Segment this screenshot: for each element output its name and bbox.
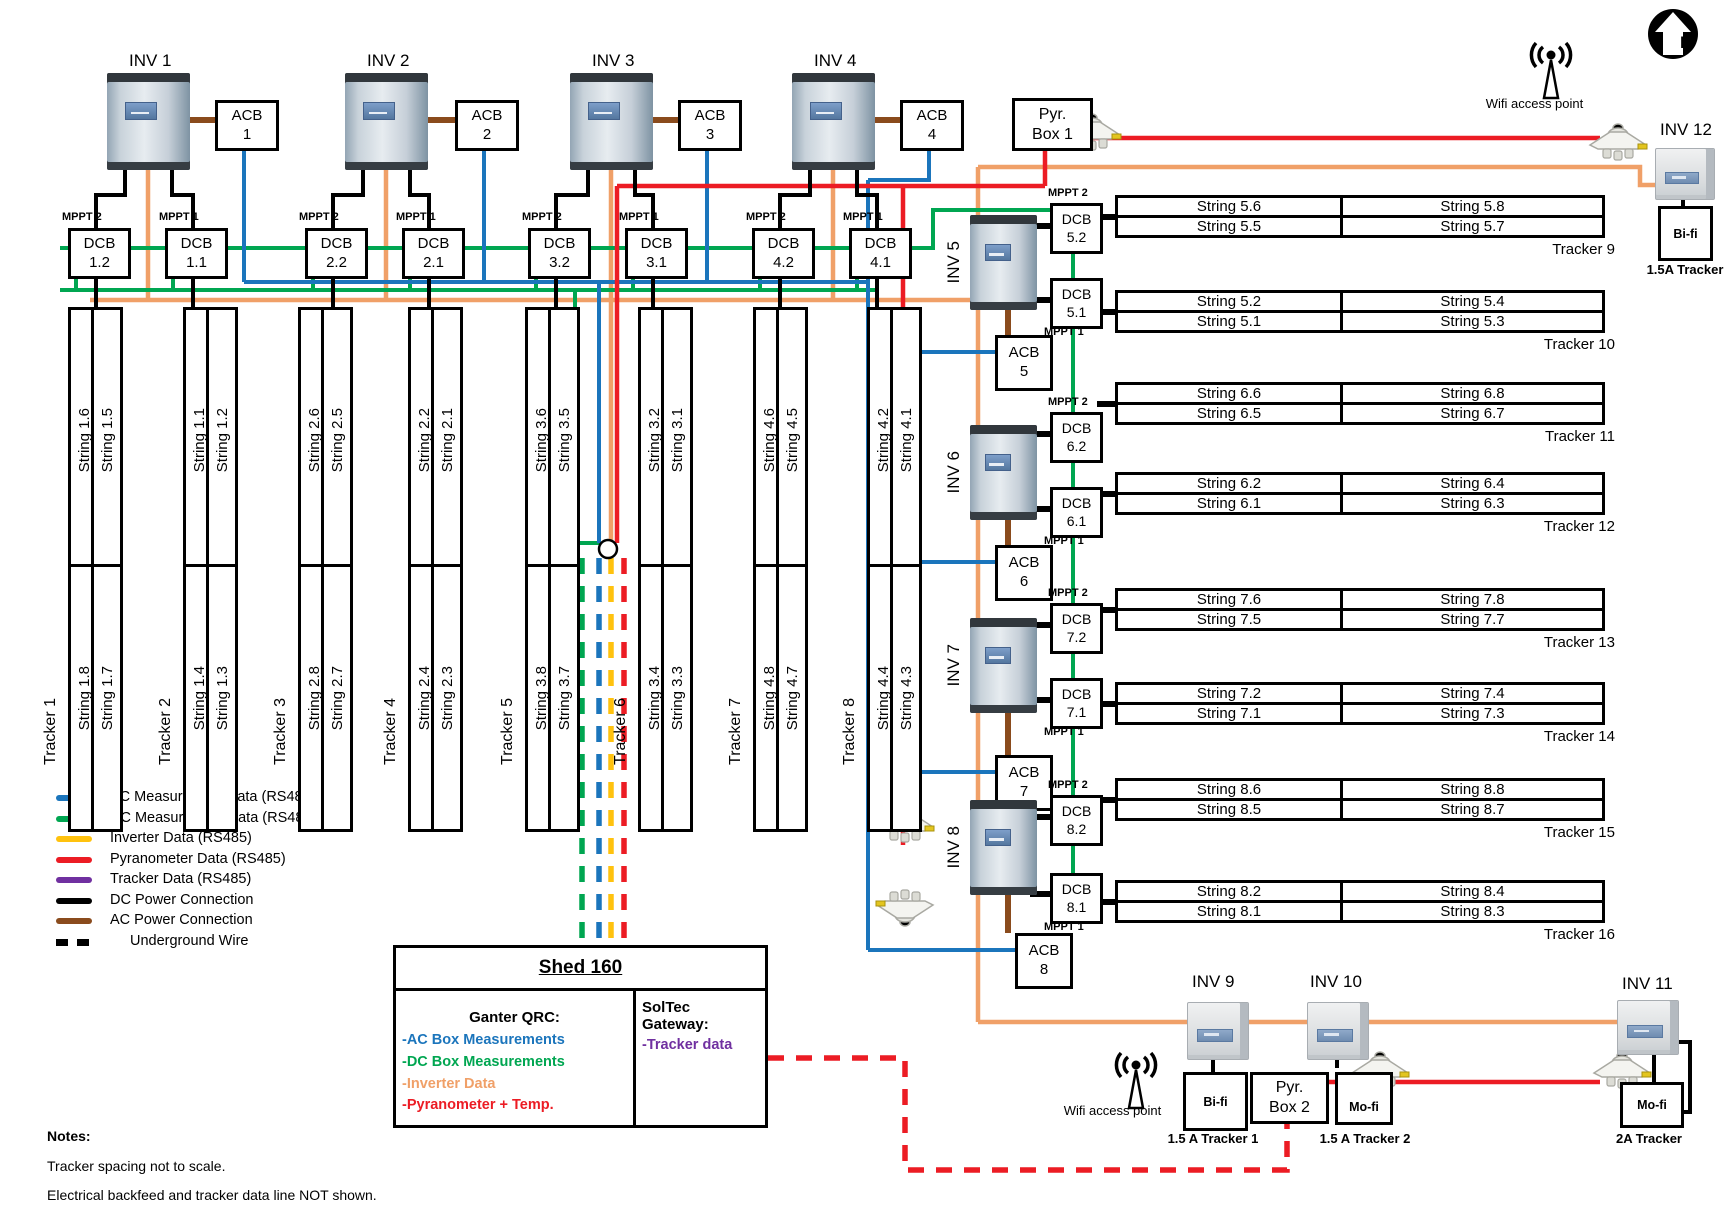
inverter-screen bbox=[810, 102, 842, 120]
string-table-cell: String 6.1 bbox=[1115, 492, 1343, 515]
dcb-box-label: DCB bbox=[1062, 420, 1092, 438]
inverter-screen bbox=[985, 829, 1011, 846]
dcb-box-label: 1.2 bbox=[89, 254, 110, 273]
string-label: String 1.4 bbox=[191, 666, 208, 730]
string-label: String 1.3 bbox=[214, 666, 231, 730]
acb-box-label: ACB bbox=[1029, 942, 1060, 961]
inverter-image bbox=[792, 73, 875, 170]
mppt-label: MPPT 1 bbox=[396, 211, 436, 223]
inverter-screen bbox=[985, 454, 1011, 471]
soltec-gateway-title: SolTec Gateway: bbox=[642, 999, 759, 1033]
dcb-box-label: DCB bbox=[1062, 611, 1092, 629]
acb-box-label: 6 bbox=[1020, 573, 1028, 592]
dcb-box-label: 5.1 bbox=[1067, 304, 1086, 322]
inv9-bifi-box: Bi-fi bbox=[1183, 1072, 1248, 1131]
string-table-row: String 8.5String 8.7 bbox=[1115, 798, 1605, 821]
inverter-label-text: INV 6 bbox=[944, 451, 964, 494]
inv12-bifi-box: Bi-fi bbox=[1658, 206, 1713, 261]
dcb-box-label: 1.1 bbox=[186, 254, 207, 273]
inverter-screen bbox=[985, 244, 1011, 261]
wifi-access-point-label-top: Wifi access point bbox=[1472, 96, 1597, 111]
string-label: String 4.5 bbox=[784, 408, 801, 472]
legend-label: Inverter Data (RS485) bbox=[110, 830, 252, 846]
acb-box-label: ACB bbox=[695, 107, 726, 126]
string-label: String 4.2 bbox=[875, 408, 892, 472]
acb-box: ACB6 bbox=[995, 545, 1053, 601]
dcb-box-label: DCB bbox=[181, 235, 213, 254]
string-table-cell: String 5.7 bbox=[1340, 215, 1605, 238]
string-table-row: String 7.5String 7.7 bbox=[1115, 608, 1605, 631]
mppt-label: MPPT 2 bbox=[1048, 187, 1088, 199]
mppt-label: MPPT 1 bbox=[619, 211, 659, 223]
dcb-box: DCB7.2 bbox=[1050, 603, 1103, 654]
string-label: String 3.5 bbox=[556, 408, 573, 472]
dcb-box: DCB6.2 bbox=[1050, 412, 1103, 463]
string-label: String 3.4 bbox=[646, 666, 663, 730]
dcb-box-label: DCB bbox=[1062, 803, 1092, 821]
string-cell: String 4.1 bbox=[890, 307, 922, 573]
inv11-screen bbox=[1627, 1025, 1663, 1038]
tracker-label: Tracker 8 bbox=[841, 636, 863, 826]
string-label: String 1.1 bbox=[191, 408, 208, 472]
acb-box-label: 4 bbox=[928, 126, 936, 145]
inverter-image bbox=[570, 73, 653, 170]
dcb-box-label: 6.2 bbox=[1067, 438, 1086, 456]
tracker-label: Tracker 7 bbox=[727, 636, 749, 826]
tracker-label-text: Tracker 5 bbox=[499, 698, 517, 765]
string-label: String 4.8 bbox=[761, 666, 778, 730]
inverter-image bbox=[345, 73, 428, 170]
tracker-table-caption: Tracker 9 bbox=[1485, 241, 1615, 258]
acb-box-label: ACB bbox=[1009, 764, 1040, 783]
dcb-box-label: DCB bbox=[1062, 286, 1092, 304]
dcb-box: DCB8.2 bbox=[1050, 795, 1103, 846]
wifi-icon-bottom bbox=[1116, 1053, 1155, 1108]
mppt-label: MPPT 2 bbox=[1048, 779, 1088, 791]
acb-box-label: 8 bbox=[1040, 961, 1048, 980]
inverter-label: INV 7 bbox=[944, 618, 968, 713]
inv9-screen bbox=[1197, 1029, 1233, 1042]
inverter-screen bbox=[588, 102, 620, 120]
shed-ganter-item: -Inverter Data bbox=[402, 1074, 627, 1096]
tracker-label: Tracker 5 bbox=[499, 636, 521, 826]
inverter-label: INV 6 bbox=[944, 425, 968, 520]
tracker-label-text: Tracker 7 bbox=[727, 698, 745, 765]
mppt-label: MPPT 2 bbox=[746, 211, 786, 223]
tracker-table-caption: Tracker 11 bbox=[1485, 428, 1615, 445]
shed-title: Shed 160 bbox=[396, 948, 765, 991]
string-cell: String 4.3 bbox=[890, 564, 922, 832]
dcb-box-label: 4.1 bbox=[870, 254, 891, 273]
dcb-box: DCB2.2 bbox=[305, 228, 368, 279]
dcb-box-label: DCB bbox=[84, 235, 116, 254]
legend-label: Pyranometer Data (RS485) bbox=[110, 851, 286, 867]
legend-label: Tracker Data (RS485) bbox=[110, 871, 251, 887]
tracker-table-caption: Tracker 14 bbox=[1485, 728, 1615, 745]
mppt-label: MPPT 2 bbox=[62, 211, 102, 223]
dcb-box-label: DCB bbox=[544, 235, 576, 254]
mppt-label: MPPT 2 bbox=[1048, 587, 1088, 599]
string-table-cell: String 7.1 bbox=[1115, 702, 1343, 725]
string-table-cell: String 5.1 bbox=[1115, 310, 1343, 333]
pyranometer-icon bbox=[1590, 124, 1647, 160]
string-label: String 2.2 bbox=[416, 408, 433, 472]
string-cell: String 3.7 bbox=[548, 564, 580, 832]
dcb-box-label: 7.1 bbox=[1067, 704, 1086, 722]
acb-box-label: 1 bbox=[243, 126, 251, 145]
inv10-caption: 1.5 A Tracker 2 bbox=[1315, 1131, 1415, 1146]
mppt-label: MPPT 2 bbox=[1048, 396, 1088, 408]
inverter-label: INV 8 bbox=[944, 800, 968, 895]
dcb-box-label: 8.1 bbox=[1067, 899, 1086, 917]
string-cell: String 3.3 bbox=[661, 564, 693, 832]
string-cell: String 3.5 bbox=[548, 307, 580, 573]
dcb-box-label: 6.1 bbox=[1067, 513, 1086, 531]
dcb-box-label: 2.2 bbox=[326, 254, 347, 273]
shed-ganter-section: Ganter QRC: -AC Box Measurements-DC Box … bbox=[396, 991, 636, 1128]
legend-swatch bbox=[56, 898, 92, 904]
dcb-box: DCB5.1 bbox=[1050, 278, 1103, 329]
tracker-label: Tracker 1 bbox=[42, 636, 64, 826]
string-cell: String 3.1 bbox=[661, 307, 693, 573]
string-label: String 4.7 bbox=[784, 666, 801, 730]
string-table-cell: String 6.3 bbox=[1340, 492, 1605, 515]
inv10-inverter bbox=[1307, 1002, 1369, 1060]
inv12-screen bbox=[1665, 172, 1699, 184]
string-table-cell: String 7.7 bbox=[1340, 608, 1605, 631]
string-label: String 1.2 bbox=[214, 408, 231, 472]
shed-soltec-item: -Tracker data bbox=[642, 1035, 759, 1057]
inverter-screen bbox=[363, 102, 395, 120]
tracker-table-caption: Tracker 10 bbox=[1485, 336, 1615, 353]
pyr-box-2: Pyr.Box 2 bbox=[1250, 1072, 1329, 1124]
dcb-box: DCB5.2 bbox=[1050, 203, 1103, 254]
acb-box: ACB5 bbox=[995, 335, 1053, 391]
acb-box-label: 3 bbox=[706, 126, 714, 145]
dcb-box-label: DCB bbox=[1062, 211, 1092, 229]
string-label: String 2.7 bbox=[329, 666, 346, 730]
inverter-image bbox=[107, 73, 190, 170]
mppt-label: MPPT 2 bbox=[522, 211, 562, 223]
string-label: String 3.3 bbox=[669, 666, 686, 730]
dcb-box-label: DCB bbox=[768, 235, 800, 254]
acb-box-label: ACB bbox=[1009, 554, 1040, 573]
acb-box-label: ACB bbox=[472, 107, 503, 126]
inverter-image bbox=[970, 800, 1037, 895]
tracker-label-text: Tracker 1 bbox=[42, 698, 60, 765]
legend-swatch bbox=[56, 918, 92, 924]
inv9-caption: 1.5 A Tracker 1 bbox=[1163, 1131, 1263, 1146]
shed-ganter-item: -AC Box Measurements bbox=[402, 1030, 627, 1052]
inverter-label: INV 3 bbox=[592, 51, 635, 71]
string-table-cell: String 8.1 bbox=[1115, 900, 1343, 923]
legend-swatch bbox=[56, 877, 92, 883]
inverter-label-text: INV 5 bbox=[944, 241, 964, 284]
dcb-box: DCB3.1 bbox=[625, 228, 688, 279]
string-cell: String 1.2 bbox=[206, 307, 238, 573]
dcb-box: DCB4.1 bbox=[849, 228, 912, 279]
string-table-row: String 5.1String 5.3 bbox=[1115, 310, 1605, 333]
inverter-label: INV 1 bbox=[129, 51, 172, 71]
string-table-row: String 6.5String 6.7 bbox=[1115, 402, 1605, 425]
string-cell: String 2.1 bbox=[431, 307, 463, 573]
wire-inverter-data bbox=[978, 167, 1656, 185]
string-cell: String 2.7 bbox=[321, 564, 353, 832]
inverter-screen bbox=[125, 102, 157, 120]
wifi-icon-top bbox=[1531, 43, 1570, 98]
inv11-label: INV 11 bbox=[1622, 974, 1673, 994]
legend-label: DC Power Connection bbox=[110, 892, 253, 908]
inverter-image bbox=[970, 618, 1037, 713]
string-cell: String 2.5 bbox=[321, 307, 353, 573]
svg-text:N: N bbox=[1680, 33, 1692, 52]
tracker-label: Tracker 2 bbox=[157, 636, 179, 826]
inverter-label: INV 4 bbox=[814, 51, 857, 71]
dcb-box: DCB1.2 bbox=[68, 228, 131, 279]
legend-label: Underground Wire bbox=[130, 933, 248, 949]
string-table-cell: String 6.7 bbox=[1340, 402, 1605, 425]
inverter-label: INV 2 bbox=[367, 51, 410, 71]
inverter-label-text: INV 7 bbox=[944, 644, 964, 687]
string-table-cell: String 7.5 bbox=[1115, 608, 1343, 631]
inv12-caption: 1.5A Tracker bbox=[1640, 262, 1729, 277]
wire-junction bbox=[599, 540, 617, 558]
acb-box: ACB4 bbox=[900, 100, 964, 151]
mppt-label: MPPT 1 bbox=[159, 211, 199, 223]
inverter-image bbox=[970, 425, 1037, 520]
inv12-label: INV 12 bbox=[1660, 120, 1712, 140]
string-label: String 3.1 bbox=[669, 408, 686, 472]
mppt-label: MPPT 1 bbox=[843, 211, 883, 223]
shed-ganter-item: -Pyranometer + Temp. bbox=[402, 1095, 627, 1117]
note-line: Electrical backfeed and tracker data lin… bbox=[47, 1187, 377, 1203]
inverter-label: INV 5 bbox=[944, 215, 968, 310]
shed-soltec-section: SolTec Gateway: -Tracker data bbox=[636, 991, 765, 1128]
string-table-row: String 7.1String 7.3 bbox=[1115, 702, 1605, 725]
dcb-box-label: 5.2 bbox=[1067, 229, 1086, 247]
inv11-inverter bbox=[1617, 1000, 1679, 1055]
acb-box-label: ACB bbox=[232, 107, 263, 126]
acb-box-label: 7 bbox=[1020, 783, 1028, 802]
tracker-label-text: Tracker 6 bbox=[612, 698, 630, 765]
north-arrow-icon: N bbox=[1648, 9, 1698, 59]
dcb-box: DCB6.1 bbox=[1050, 487, 1103, 538]
inv9-label: INV 9 bbox=[1192, 972, 1235, 992]
string-label: String 2.6 bbox=[306, 408, 323, 472]
shed-160-box: Shed 160 Ganter QRC: -AC Box Measurement… bbox=[393, 945, 768, 1128]
dcb-box: DCB3.2 bbox=[528, 228, 591, 279]
tracker-label: Tracker 6 bbox=[612, 636, 634, 826]
string-table-row: String 5.5String 5.7 bbox=[1115, 215, 1605, 238]
inv9-inverter bbox=[1187, 1002, 1249, 1060]
dcb-box-label: 3.1 bbox=[646, 254, 667, 273]
note-line: Tracker spacing not to scale. bbox=[47, 1158, 377, 1174]
dcb-box: DCB2.1 bbox=[402, 228, 465, 279]
inv12-inverter bbox=[1655, 148, 1715, 200]
string-label: String 4.6 bbox=[761, 408, 778, 472]
dcb-box: DCB4.2 bbox=[752, 228, 815, 279]
dcb-box: DCB7.1 bbox=[1050, 678, 1103, 729]
dcb-box-label: 2.1 bbox=[423, 254, 444, 273]
string-table-cell: String 5.5 bbox=[1115, 215, 1343, 238]
legend-swatch bbox=[56, 857, 92, 863]
string-label: String 4.4 bbox=[875, 666, 892, 730]
tracker-label-text: Tracker 4 bbox=[382, 698, 400, 765]
notes-title: Notes: bbox=[47, 1128, 377, 1144]
string-cell: String 4.5 bbox=[776, 307, 808, 573]
string-cell: String 1.7 bbox=[91, 564, 123, 832]
pyranometer-icon-flipped bbox=[876, 890, 933, 926]
dcb-box-label: 7.2 bbox=[1067, 629, 1086, 647]
inv11-caption: 2A Tracker bbox=[1604, 1131, 1694, 1146]
string-table-cell: String 6.5 bbox=[1115, 402, 1343, 425]
acb-box-label: ACB bbox=[917, 107, 948, 126]
string-table-cell: String 8.3 bbox=[1340, 900, 1605, 923]
string-label: String 1.5 bbox=[99, 408, 116, 472]
dcb-box-label: DCB bbox=[418, 235, 450, 254]
inv11-mofi-box: Mo-fi bbox=[1620, 1082, 1684, 1128]
tracker-label: Tracker 4 bbox=[382, 636, 404, 826]
dcb-box: DCB1.1 bbox=[165, 228, 228, 279]
tracker-table-caption: Tracker 15 bbox=[1485, 824, 1615, 841]
inverter-label-text: INV 8 bbox=[944, 826, 964, 869]
inv10-screen bbox=[1317, 1029, 1353, 1042]
string-label: String 3.7 bbox=[556, 666, 573, 730]
string-table-cell: String 5.3 bbox=[1340, 310, 1605, 333]
string-label: String 2.4 bbox=[416, 666, 433, 730]
acb-box: ACB1 bbox=[215, 100, 279, 151]
string-label: String 1.7 bbox=[99, 666, 116, 730]
dcb-box-label: DCB bbox=[865, 235, 897, 254]
string-cell: String 2.3 bbox=[431, 564, 463, 832]
tracker-label: Tracker 3 bbox=[272, 636, 294, 826]
string-table-cell: String 7.3 bbox=[1340, 702, 1605, 725]
string-cell: String 4.7 bbox=[776, 564, 808, 832]
string-label: String 2.8 bbox=[306, 666, 323, 730]
string-cell: String 1.3 bbox=[206, 564, 238, 832]
string-label: String 2.5 bbox=[329, 408, 346, 472]
dcb-box-label: 4.2 bbox=[773, 254, 794, 273]
string-cell: String 1.5 bbox=[91, 307, 123, 573]
inv10-label: INV 10 bbox=[1310, 972, 1362, 992]
diagram-canvas: N Pyr.Box 1 Wifi access point INV 12 Bi-… bbox=[0, 0, 1729, 1222]
pyr-box-1: Pyr.Box 1 bbox=[1012, 98, 1093, 151]
tracker-table-caption: Tracker 13 bbox=[1485, 634, 1615, 651]
string-table-cell: String 8.5 bbox=[1115, 798, 1343, 821]
inv10-mofi-box: Mo-fi bbox=[1335, 1072, 1393, 1125]
acb-box-label: 2 bbox=[483, 126, 491, 145]
string-table-cell: String 8.7 bbox=[1340, 798, 1605, 821]
string-label: String 1.6 bbox=[76, 408, 93, 472]
tracker-label-text: Tracker 2 bbox=[157, 698, 175, 765]
string-label: String 4.3 bbox=[898, 666, 915, 730]
string-label: String 1.8 bbox=[76, 666, 93, 730]
notes: Notes: Tracker spacing not to scale. Ele… bbox=[47, 1128, 377, 1216]
legend-swatch bbox=[56, 836, 92, 842]
inverter-image bbox=[970, 215, 1037, 310]
dcb-box-label: 8.2 bbox=[1067, 821, 1086, 839]
acb-box: ACB3 bbox=[678, 100, 742, 151]
string-label: String 2.3 bbox=[439, 666, 456, 730]
acb-box-label: 5 bbox=[1020, 363, 1028, 382]
dcb-box-label: DCB bbox=[1062, 686, 1092, 704]
acb-box: ACB8 bbox=[1015, 933, 1073, 989]
string-label: String 3.8 bbox=[533, 666, 550, 730]
acb-box: ACB2 bbox=[455, 100, 519, 151]
string-table-row: String 6.1String 6.3 bbox=[1115, 492, 1605, 515]
mppt-label: MPPT 2 bbox=[299, 211, 339, 223]
string-label: String 4.1 bbox=[898, 408, 915, 472]
tracker-label-text: Tracker 3 bbox=[272, 698, 290, 765]
legend-swatch bbox=[56, 939, 92, 946]
tracker-table-caption: Tracker 12 bbox=[1485, 518, 1615, 535]
tracker-table-caption: Tracker 16 bbox=[1485, 926, 1615, 943]
string-table-row: String 8.1String 8.3 bbox=[1115, 900, 1605, 923]
tracker-label-text: Tracker 8 bbox=[841, 698, 859, 765]
dcb-box: DCB8.1 bbox=[1050, 873, 1103, 924]
acb-box-label: ACB bbox=[1009, 344, 1040, 363]
dcb-box-label: DCB bbox=[321, 235, 353, 254]
dcb-box-label: DCB bbox=[641, 235, 673, 254]
string-label: String 3.2 bbox=[646, 408, 663, 472]
dcb-box-label: DCB bbox=[1062, 881, 1092, 899]
shed-ganter-item: -DC Box Measurements bbox=[402, 1052, 627, 1074]
dcb-box-label: DCB bbox=[1062, 495, 1092, 513]
wifi-access-point-label-bottom: Wifi access point bbox=[1050, 1103, 1175, 1118]
dcb-box-label: 3.2 bbox=[549, 254, 570, 273]
string-label: String 3.6 bbox=[533, 408, 550, 472]
ganter-qrc-title: Ganter QRC: bbox=[402, 1009, 627, 1026]
inverter-screen bbox=[985, 647, 1011, 664]
string-label: String 2.1 bbox=[439, 408, 456, 472]
legend-label: AC Power Connection bbox=[110, 912, 253, 928]
